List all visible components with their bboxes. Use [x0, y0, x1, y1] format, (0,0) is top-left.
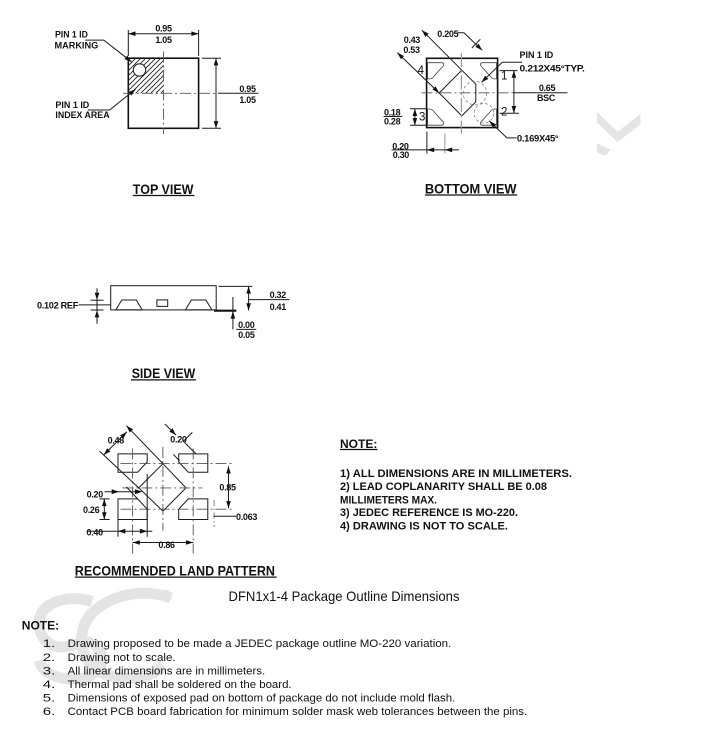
svg-text:1.05: 1.05 — [239, 95, 256, 105]
svg-text:0.48: 0.48 — [108, 436, 125, 446]
svg-text:0.20: 0.20 — [87, 489, 104, 499]
svg-text:0.063: 0.063 — [236, 512, 257, 522]
svg-text:PIN 1 ID: PIN 1 ID — [55, 100, 89, 110]
svg-text:0.32: 0.32 — [270, 290, 287, 300]
svg-text:0.95: 0.95 — [155, 23, 172, 33]
svg-text:0.26: 0.26 — [83, 505, 100, 515]
svg-text:1) ALL DIMENSIONS ARE IN MILLI: 1) ALL DIMENSIONS ARE IN MILLIMETERS. — [340, 468, 572, 480]
svg-text:3) JEDEC REFERENCE IS MO-220.: 3) JEDEC REFERENCE IS MO-220. — [340, 507, 518, 519]
svg-text:PIN 1 ID: PIN 1 ID — [55, 30, 88, 40]
svg-text:BSC: BSC — [537, 93, 556, 103]
svg-text:0.205: 0.205 — [437, 29, 458, 39]
svg-text:RECOMMENDED LAND PATTERN: RECOMMENDED LAND PATTERN — [75, 562, 275, 578]
svg-text:5.: 5. — [43, 693, 56, 705]
svg-text:MILLIMETERS MAX.: MILLIMETERS MAX. — [340, 494, 437, 506]
svg-text:0.28: 0.28 — [384, 117, 401, 127]
svg-text:0.43: 0.43 — [404, 35, 421, 45]
svg-text:Drawing proposed to be made a: Drawing proposed to be made a JEDEC pack… — [68, 638, 452, 650]
svg-text:Drawing not to scale.: Drawing not to scale. — [68, 652, 176, 664]
svg-text:0.40: 0.40 — [87, 527, 104, 537]
svg-text:0.85: 0.85 — [219, 483, 236, 493]
svg-text:MARKING: MARKING — [55, 40, 99, 50]
svg-text:INDEX AREA: INDEX AREA — [55, 110, 109, 120]
svg-text:3.: 3. — [43, 665, 56, 677]
svg-text:4: 4 — [418, 65, 425, 77]
svg-text:1: 1 — [501, 71, 507, 83]
svg-text:0.53: 0.53 — [403, 45, 420, 55]
svg-text:Dimensions of exposed pad on b: Dimensions of exposed pad on bottom of p… — [68, 693, 456, 705]
svg-text:Contact PCB board fabrication: Contact PCB board fabrication for minimu… — [68, 706, 528, 718]
svg-text:SIDE VIEW: SIDE VIEW — [132, 365, 196, 381]
svg-text:0.86: 0.86 — [158, 540, 175, 550]
svg-text:1.: 1. — [43, 638, 56, 650]
svg-text:DFN1x1-4 Package Outline Dimen: DFN1x1-4 Package Outline Dimensions — [229, 588, 460, 604]
svg-text:0.169X45°: 0.169X45° — [517, 134, 559, 144]
svg-text:TOP VIEW: TOP VIEW — [133, 181, 194, 197]
svg-text:0.05: 0.05 — [238, 330, 255, 340]
svg-text:2.: 2. — [43, 652, 56, 664]
svg-text:2: 2 — [501, 107, 507, 119]
svg-text:0.20: 0.20 — [170, 435, 187, 445]
svg-text:3: 3 — [419, 111, 425, 123]
svg-text:All linear dimensions are in m: All linear dimensions are in millimeters… — [68, 665, 266, 677]
svg-text:Thermal pad shall be soldered: Thermal pad shall be soldered on the boa… — [68, 679, 292, 691]
svg-text:NOTE:: NOTE: — [340, 437, 377, 451]
svg-text:0.95: 0.95 — [239, 84, 256, 94]
svg-text:NOTE:: NOTE: — [22, 618, 59, 632]
svg-text:0.00: 0.00 — [238, 320, 255, 330]
svg-text:2) LEAD COPLANARITY SHALL BE 0: 2) LEAD COPLANARITY SHALL BE 0.08 — [340, 481, 547, 493]
svg-text:6.: 6. — [43, 706, 56, 718]
svg-text:4.: 4. — [43, 679, 56, 691]
svg-text:0.102 REF: 0.102 REF — [37, 300, 79, 310]
svg-text:0.65: 0.65 — [539, 83, 556, 93]
svg-text:0.30: 0.30 — [393, 150, 410, 160]
svg-text:4) DRAWING IS NOT TO SCALE.: 4) DRAWING IS NOT TO SCALE. — [340, 520, 508, 532]
svg-text:PIN 1 ID: PIN 1 ID — [520, 50, 554, 60]
svg-text:BOTTOM VIEW: BOTTOM VIEW — [425, 181, 517, 197]
svg-text:1.05: 1.05 — [155, 35, 172, 45]
svg-text:0.41: 0.41 — [270, 302, 287, 312]
svg-text:0.212X45°TYP.: 0.212X45°TYP. — [520, 63, 585, 73]
